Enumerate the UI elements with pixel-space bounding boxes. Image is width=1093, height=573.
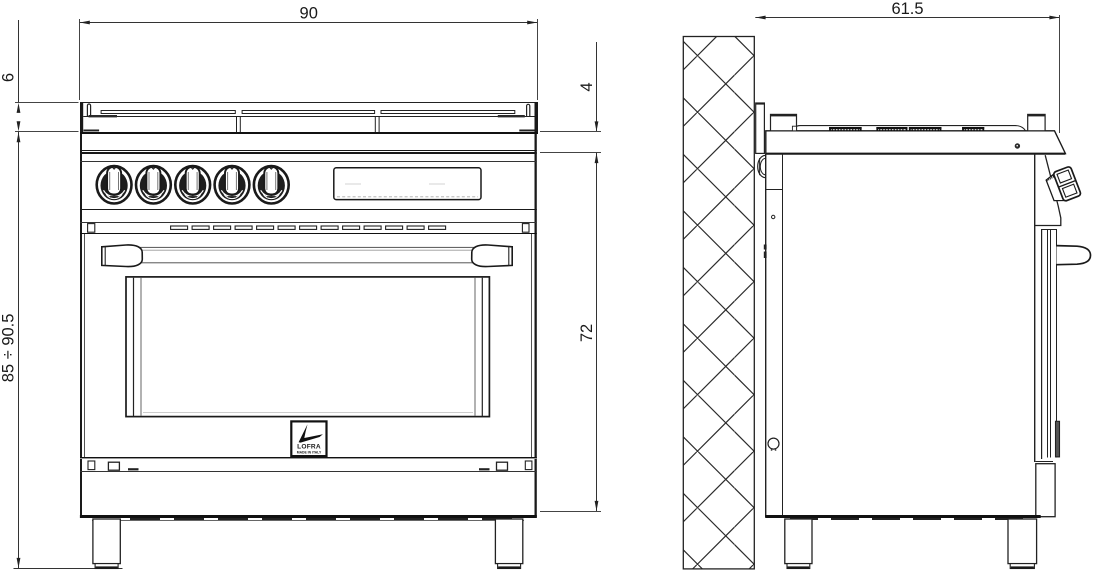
svg-text:90: 90 <box>300 4 318 22</box>
svg-text:LOFRA: LOFRA <box>297 443 321 450</box>
svg-text:85 ÷ 90.5: 85 ÷ 90.5 <box>0 314 17 383</box>
svg-text:72: 72 <box>578 324 596 342</box>
svg-text:6: 6 <box>0 73 17 82</box>
svg-text:61.5: 61.5 <box>891 0 923 18</box>
svg-text:4: 4 <box>578 82 596 91</box>
svg-text:MADE IN ITALY: MADE IN ITALY <box>297 451 322 455</box>
